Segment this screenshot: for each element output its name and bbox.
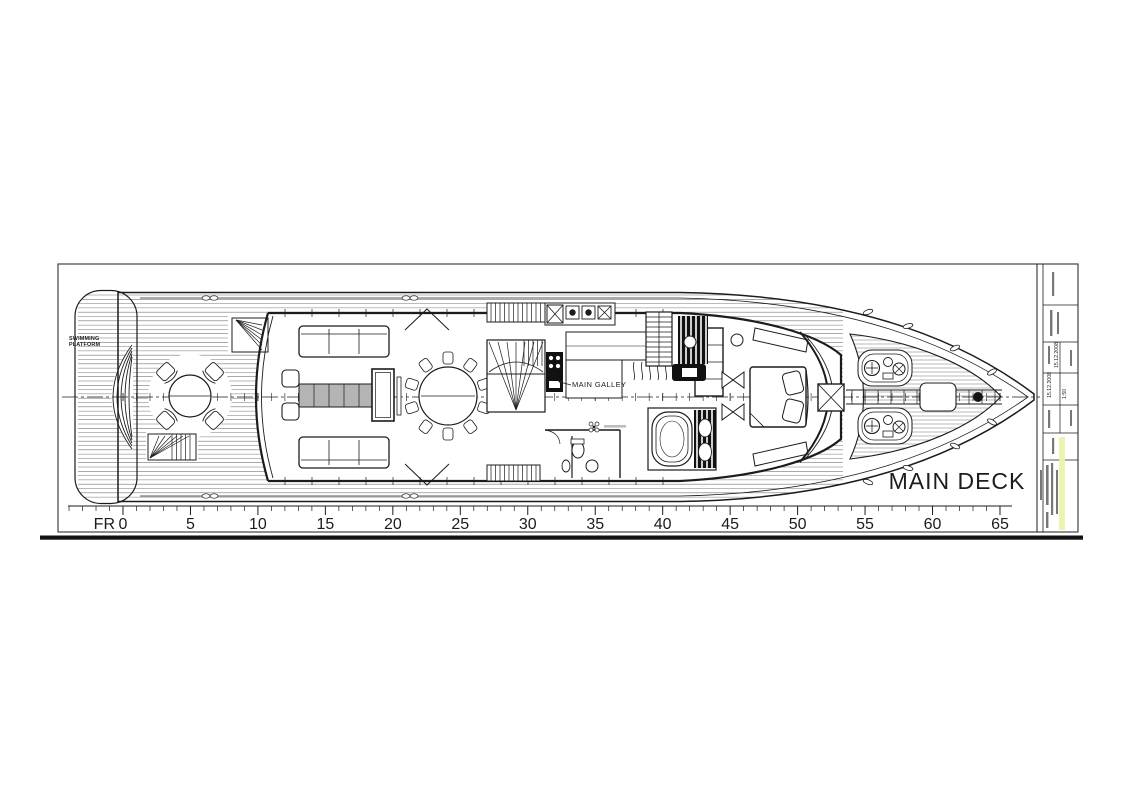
deck-cleat: [402, 494, 410, 498]
plant-center: [593, 426, 596, 429]
chain-hatch: [920, 383, 956, 411]
stove-oven: [549, 381, 560, 388]
titleblock-text-smudge: [1048, 346, 1050, 364]
bath-toilet: [699, 419, 712, 437]
titleblock-text-smudge: [1052, 438, 1054, 454]
ruler-number: 65: [991, 516, 1009, 533]
titleblock-text-smudge: [1046, 465, 1049, 505]
swim-platform-label-line2: PLATFORM: [69, 342, 100, 348]
deck-cleat: [202, 494, 210, 498]
plant-leaf: [595, 428, 599, 432]
deck-cleat: [202, 296, 210, 300]
ottoman: [282, 370, 299, 387]
bow-cleat: [863, 308, 874, 316]
titleblock-text-smudge: [1070, 350, 1072, 366]
dining-chair-seat: [443, 352, 453, 364]
titleblock-text-smudge: [1057, 312, 1059, 334]
titleblock-scale: 1:50: [1062, 389, 1068, 399]
frame-ruler: 05101520253035404550556065FR: [68, 506, 1012, 533]
deck-cleat: [210, 494, 218, 498]
dining-chair: [443, 352, 453, 364]
deck-cleat: [410, 494, 418, 498]
windlass-base: [883, 431, 893, 437]
stove-burner: [549, 356, 554, 361]
titleblock-text-smudge: [1052, 272, 1054, 296]
titleblock-text-smudge: [1056, 470, 1058, 514]
ruler-number: 10: [249, 516, 267, 533]
ruler-number: 0: [119, 516, 128, 533]
burner-dot: [585, 309, 591, 315]
coffee-table: [299, 384, 375, 407]
ruler-number: 20: [384, 516, 402, 533]
salon-sofa: [299, 326, 389, 357]
titleblock-text-smudge: [1050, 310, 1052, 336]
toilet-tank: [571, 439, 584, 444]
ruler-number: 35: [586, 516, 604, 533]
ruler-number: 5: [186, 516, 195, 533]
bow-cleat: [863, 478, 874, 486]
salon-sofa: [299, 437, 389, 468]
tv-cabinet-inner: [376, 373, 391, 418]
bathtub: [652, 412, 692, 466]
ruler-number: 50: [789, 516, 807, 533]
windlass-base: [883, 373, 893, 379]
ruler-number: 30: [519, 516, 537, 533]
plant-leaf: [589, 422, 593, 426]
ruler-number: 55: [856, 516, 874, 533]
stove-burner: [549, 364, 554, 369]
console-panel: [397, 377, 401, 415]
ruler-number: 60: [924, 516, 942, 533]
ruler-number: 25: [451, 516, 469, 533]
galley-island-b: [566, 360, 622, 398]
windlass-motor: [884, 416, 893, 425]
deck-cleat: [402, 296, 410, 300]
bow-fitting: [974, 393, 983, 402]
titleblock-text-smudge: [1070, 410, 1072, 426]
titleblock-date-a: 15.12.2008: [1047, 372, 1053, 398]
deck-cleat: [410, 296, 418, 300]
ruler-prefix: FR: [94, 516, 115, 533]
stove-burner: [556, 356, 561, 361]
sink: [586, 460, 598, 472]
main-deck-plan: 05101520253035404550556065FR MAIN DECK M…: [0, 0, 1125, 800]
titleblock-text-smudge: [1046, 512, 1048, 528]
burner-dot: [569, 309, 575, 315]
drawing-page: 05101520253035404550556065FR MAIN DECK M…: [0, 0, 1125, 800]
ruler-number: 15: [316, 516, 334, 533]
windlass-motor: [884, 358, 893, 367]
titleblock-text-smudge: [1048, 410, 1050, 428]
bath2-sink: [684, 336, 696, 348]
bath2-counter-inner: [682, 368, 697, 377]
dining-chair: [443, 428, 453, 440]
heavy-underline: [40, 536, 1083, 540]
dining-chair-seat: [443, 428, 453, 440]
ruler-number: 45: [721, 516, 739, 533]
main-galley-label: MAIN GALLEY: [572, 380, 626, 389]
ruler-number: 40: [654, 516, 672, 533]
highlight-strip: [1059, 437, 1065, 530]
main-deck-label: MAIN DECK: [889, 468, 1026, 494]
ottoman: [282, 403, 299, 420]
title-block: [1037, 264, 1078, 532]
stool: [731, 334, 743, 346]
plant-leaf: [595, 422, 599, 426]
bow-cleat: [903, 323, 914, 330]
bath-bidet: [699, 443, 712, 461]
deck-cleat: [210, 296, 218, 300]
tiny-label-smudge: [604, 425, 626, 428]
titleblock-text-smudge: [1040, 470, 1042, 500]
plant-leaf: [589, 428, 593, 432]
titleblock-text-smudge: [1051, 463, 1053, 515]
bidet: [562, 460, 570, 472]
stove-burner: [556, 364, 561, 369]
titleblock-date-b: 15.12.2008: [1054, 342, 1060, 368]
